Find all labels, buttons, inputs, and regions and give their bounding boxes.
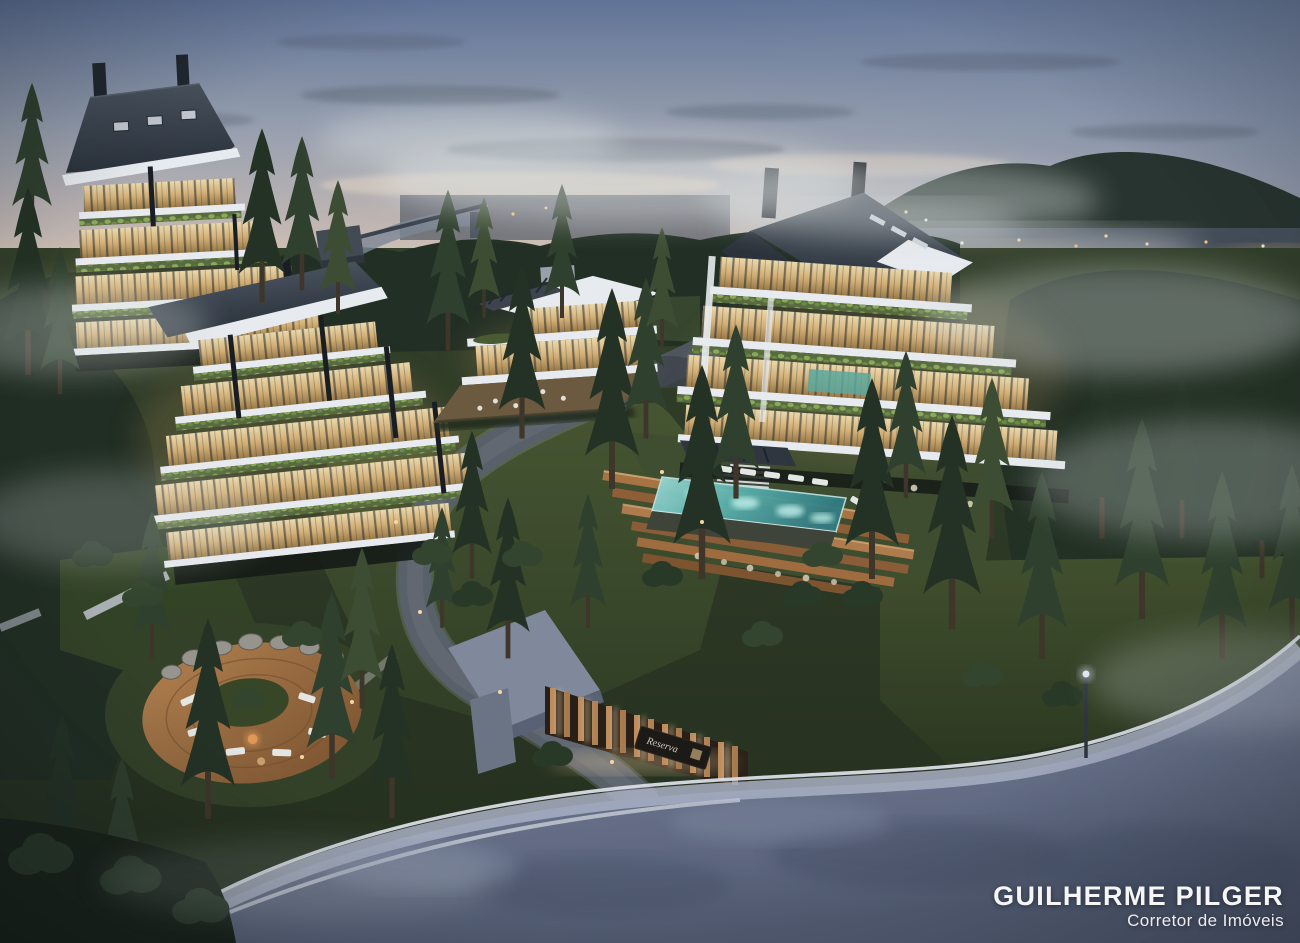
watermark: GUILHERME PILGER Corretor de Imóveis (993, 882, 1284, 931)
architectural-render-scene: Reserva (0, 0, 1300, 943)
vignette (0, 0, 1300, 943)
watermark-title: Corretor de Imóveis (993, 911, 1284, 931)
render-canvas: Reserva (0, 0, 1300, 943)
watermark-name: GUILHERME PILGER (993, 882, 1284, 911)
